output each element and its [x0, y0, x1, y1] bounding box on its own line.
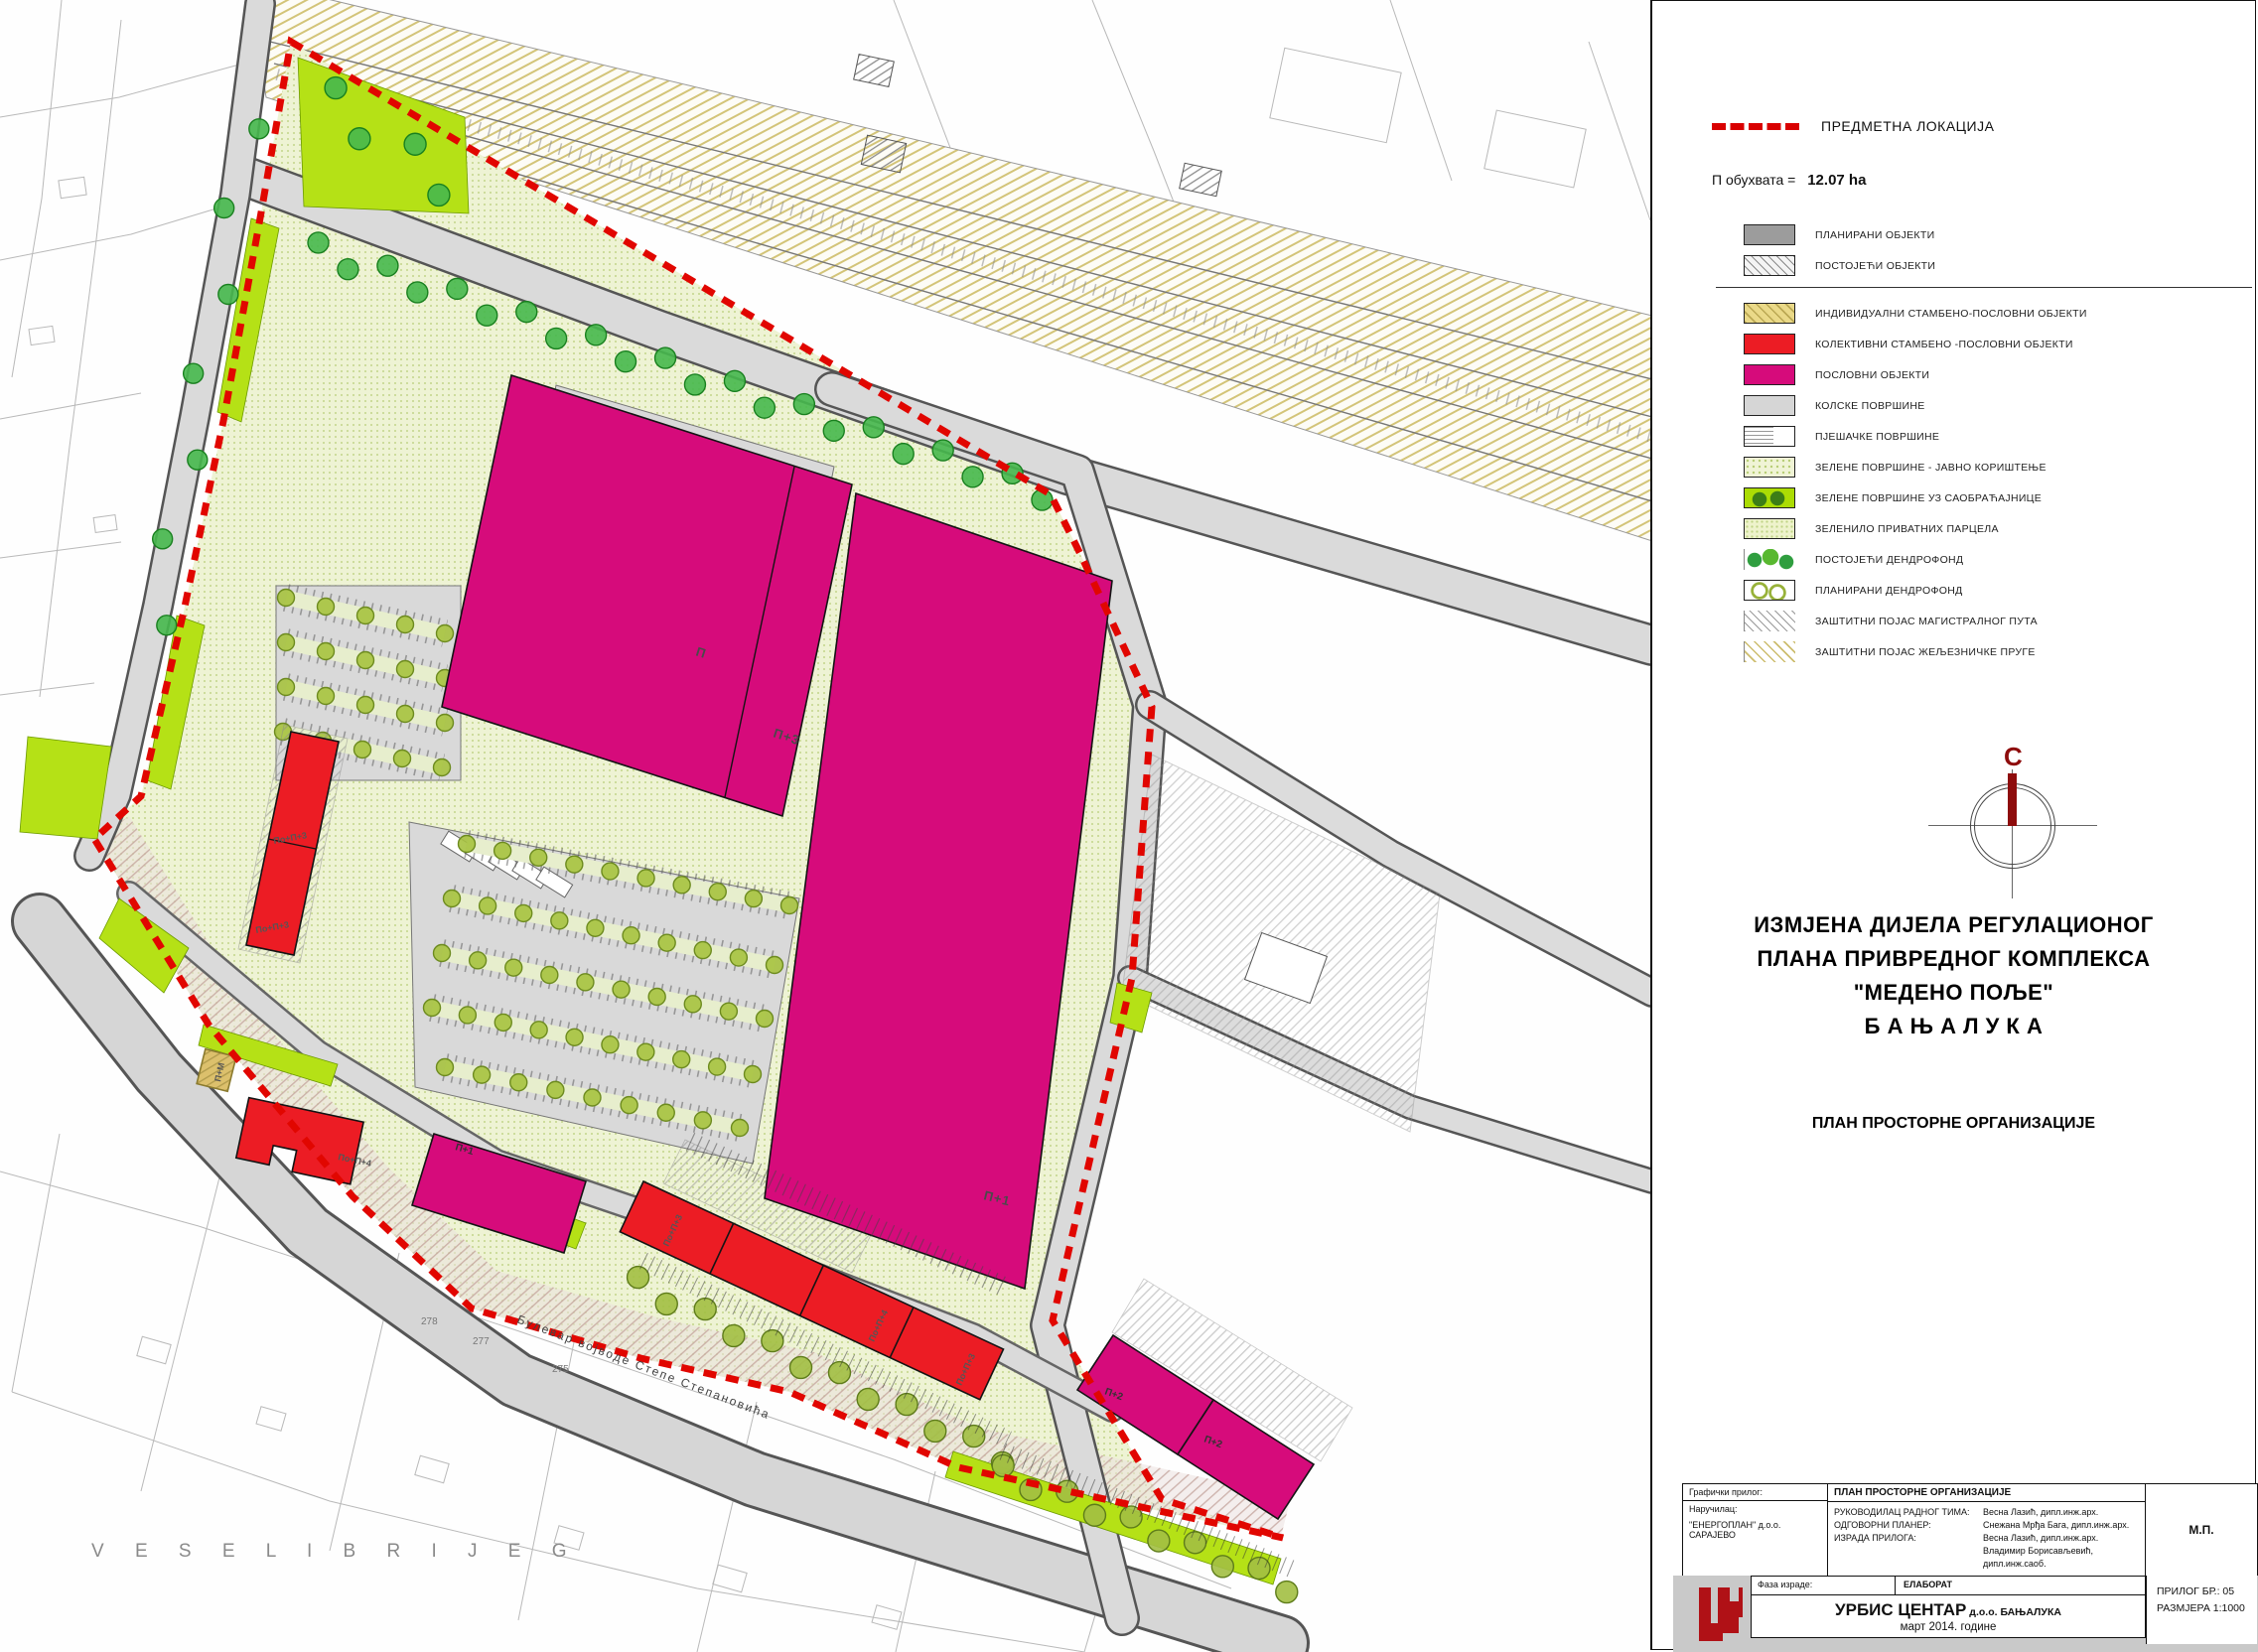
phase-label: Фаза израде:	[1752, 1577, 1896, 1594]
stamp-label: М.П.	[2146, 1484, 2257, 1576]
tree-icon	[1148, 1530, 1170, 1552]
tree-icon	[709, 1058, 726, 1075]
tree-icon	[566, 856, 583, 873]
tree-icon	[541, 967, 558, 984]
tree-icon	[377, 255, 398, 276]
tree-icon	[684, 374, 705, 395]
planned-dendrofund-swatch	[1744, 580, 1795, 601]
plan-name: ПЛАН ПРОСТОРНЕ ОРГАНИЗАЦИЈЕ	[1828, 1484, 2145, 1502]
tree-icon	[397, 661, 414, 678]
tree-icon	[694, 1112, 711, 1129]
subject-location-legend: ПРЕДМЕТНА ЛОКАЦИЈА	[1712, 118, 1994, 134]
tree-icon	[551, 912, 568, 929]
tree-icon	[648, 989, 665, 1006]
rail-belt-swatch	[1744, 641, 1795, 662]
tree-icon	[745, 1066, 762, 1083]
legend-item: ПОСЛОВНИ ОБЈЕКТИ	[1744, 359, 2245, 390]
legend-item: ЗЕЛЕНИЛО ПРИВАТНИХ ПАРЦЕЛА	[1744, 513, 2245, 544]
legend-item: ЗАШТИТНИ ПОЈАС ЖЕЉЕЗНИЧКЕ ПРУГЕ	[1744, 636, 2245, 667]
tree-icon	[623, 927, 639, 944]
tree-icon	[828, 1362, 850, 1384]
tree-icon	[566, 1029, 583, 1045]
tree-icon	[218, 284, 238, 304]
tree-icon	[724, 370, 745, 391]
tree-icon	[470, 952, 487, 969]
subject-location-label: ПРЕДМЕТНА ЛОКАЦИЈА	[1821, 118, 1994, 134]
tree-icon	[767, 957, 783, 974]
tree-icon	[434, 759, 451, 776]
tree-icon	[762, 1330, 783, 1352]
tree-icon	[530, 1022, 547, 1038]
tree-icon	[602, 863, 619, 880]
tree-icon	[621, 1097, 637, 1114]
legend-item: КОЛСКЕ ПОВРШИНЕ	[1744, 390, 2245, 421]
tree-icon	[407, 282, 428, 303]
legend-list: ПЛАНИРАНИ ОБЈЕКТИ ПОСТОЈЕЋИ ОБЈЕКТИ ИНДИ…	[1744, 219, 2245, 667]
compass-needle	[2008, 773, 2017, 826]
tree-icon	[325, 77, 347, 99]
phase-value: ЕЛАБОРАТ	[1896, 1577, 1960, 1594]
tree-icon	[745, 891, 762, 907]
legend-item: ПОСТОЈЕЋИ ОБЈЕКТИ	[1744, 250, 2245, 281]
tree-icon	[586, 325, 607, 345]
tree-icon	[480, 897, 496, 914]
company-suffix: д.о.о. БАЊАЛУКА	[1966, 1606, 2061, 1618]
tree-icon	[793, 394, 814, 415]
company-box: УРБИС ЦЕНТАР д.о.о. БАЊАЛУКА март 2014. …	[1751, 1594, 2146, 1638]
road-belt-swatch	[1744, 611, 1795, 631]
tree-icon	[318, 688, 335, 705]
tree-icon	[709, 884, 726, 900]
business-objects-swatch	[1744, 364, 1795, 385]
tree-icon	[505, 959, 522, 976]
svg-text:V E S E L I B R I J E G: V E S E L I B R I J E G	[91, 1541, 580, 1562]
title-block: Графички прилог: Наручилац: "ЕНЕРГОПЛАН"…	[1682, 1483, 2258, 1643]
tree-icon	[637, 1043, 654, 1060]
tree-icon	[781, 897, 798, 914]
tree-icon	[459, 1007, 476, 1024]
tree-icon	[444, 891, 461, 907]
scale-label: РАЗМЈЕРА 1:1000	[2157, 1600, 2257, 1617]
tree-icon	[655, 347, 676, 368]
tree-icon	[357, 608, 374, 624]
tree-icon	[318, 643, 335, 660]
tree-icon	[404, 133, 426, 155]
legend-item: КОЛЕКТИВНИ СТАМБЕНО -ПОСЛОВНИ ОБЈЕКТИ	[1744, 329, 2245, 359]
tree-icon	[757, 1011, 774, 1028]
client-label: Наручилац:	[1683, 1501, 1827, 1517]
tree-icon	[932, 440, 953, 461]
tree-icon	[397, 617, 414, 633]
plan-title: ИЗМЈЕНА ДИЈЕЛА РЕГУЛАЦИОНОГ ПЛАНА ПРИВРЕ…	[1652, 908, 2255, 1043]
tree-icon	[510, 1074, 527, 1091]
tree-icon	[616, 351, 636, 372]
legend-panel: ПРЕДМЕТНА ЛОКАЦИЈА П обухвата = 12.07 ha…	[1650, 0, 2256, 1650]
planned-objects-swatch	[1744, 224, 1795, 245]
tree-icon	[730, 949, 747, 966]
tree-icon	[394, 751, 411, 767]
company-date: март 2014. године	[1752, 1621, 2145, 1633]
tree-icon	[477, 305, 497, 326]
tree-icon	[437, 1059, 454, 1076]
tree-icon	[354, 742, 371, 758]
tree-icon	[694, 942, 711, 959]
svg-text:275: 275	[552, 1364, 569, 1375]
tree-icon	[428, 184, 450, 206]
site-map: П П+3 П+1 По+П+3 По+П+3 По+П+4 П+М П+1 П…	[0, 0, 1652, 1652]
tree-icon	[584, 1089, 601, 1106]
tree-icon	[723, 1324, 745, 1346]
red-dashed-line-icon	[1712, 123, 1799, 130]
tree-icon	[577, 974, 594, 991]
tree-icon	[673, 1051, 690, 1068]
collective-objects-swatch	[1744, 334, 1795, 354]
attachment-number: ПРИЛОГ БР.: 05	[2157, 1583, 2257, 1600]
coverage-area-value: 12.07 ha	[1807, 172, 1866, 189]
legend-item: ПЈЕШАЧКЕ ПОВРШИНЕ	[1744, 421, 2245, 452]
coverage-area-label: П обухвата =	[1712, 172, 1795, 188]
existing-dendrofund-swatch	[1744, 549, 1795, 570]
legend-item: ПЛАНИРАНИ ДЕНДРОФОНД	[1744, 575, 2245, 606]
tree-icon	[1185, 1532, 1206, 1554]
graphic-attachment-label: Графички прилог:	[1683, 1484, 1827, 1501]
tree-icon	[153, 529, 173, 549]
tree-icon	[587, 919, 604, 936]
tree-icon	[754, 397, 775, 418]
tree-icon	[447, 278, 468, 299]
tree-icon	[494, 1014, 511, 1031]
legend-item: ЗАШТИТНИ ПОЈАС МАГИСТРАЛНОГ ПУТА	[1744, 606, 2245, 636]
tree-icon	[184, 363, 204, 383]
legend-item: ЗЕЛЕНЕ ПОВРШИНЕ - ЈАВНО КОРИШТЕЊЕ	[1744, 452, 2245, 482]
tree-icon	[157, 616, 177, 635]
tree-icon	[790, 1356, 812, 1378]
tree-icon	[1276, 1582, 1298, 1603]
tree-icon	[658, 934, 675, 951]
north-compass-icon: С	[1928, 744, 2097, 912]
tree-icon	[732, 1120, 749, 1137]
tree-icon	[308, 232, 329, 253]
tree-icon	[516, 302, 537, 323]
tree-icon	[863, 417, 884, 438]
individual-objects-swatch	[1744, 303, 1795, 324]
tree-icon	[515, 904, 532, 921]
tree-icon	[357, 652, 374, 669]
tree-icon	[896, 1394, 917, 1416]
vehicular-surfaces-swatch	[1744, 395, 1795, 416]
tree-icon	[547, 1081, 564, 1098]
tree-icon	[857, 1388, 879, 1410]
tree-icon	[424, 1000, 441, 1017]
company-name: УРБИС ЦЕНТАР	[1835, 1600, 1966, 1619]
tree-icon	[349, 128, 370, 150]
tree-icon	[397, 706, 414, 723]
tree-icon	[1211, 1556, 1233, 1578]
tree-icon	[474, 1066, 491, 1083]
tree-icon	[530, 849, 547, 866]
tree-icon	[1083, 1504, 1105, 1526]
tree-icon	[992, 1454, 1014, 1476]
plan-sheet: П П+3 П+1 По+П+3 По+П+3 По+П+4 П+М П+1 П…	[0, 0, 2258, 1652]
tree-icon	[673, 877, 690, 894]
tree-icon	[278, 590, 295, 607]
green-private-swatch	[1744, 518, 1795, 539]
legend-item: ЗЕЛЕНЕ ПОВРШИНЕ УЗ САОБРАЋАЈНИЦЕ	[1744, 482, 2245, 513]
legend-item: ПОСТОЈЕЋИ ДЕНДРОФОНД	[1744, 544, 2245, 575]
tree-icon	[655, 1293, 677, 1314]
urbis-logo-icon	[1697, 1585, 1743, 1645]
tree-icon	[318, 599, 335, 616]
legend-item: ИНДИВИДУАЛНИ СТАМБЕНО-ПОСЛОВНИ ОБЈЕКТИ	[1744, 298, 2245, 329]
coverage-area: П обухвата = 12.07 ha	[1712, 172, 1866, 189]
north-letter: С	[2004, 742, 2023, 772]
tree-icon	[657, 1104, 674, 1121]
green-public-swatch	[1744, 457, 1795, 478]
green-road-swatch	[1744, 487, 1795, 508]
tree-icon	[188, 450, 208, 470]
tree-icon	[637, 870, 654, 887]
tree-icon	[494, 842, 511, 859]
tree-icon	[546, 328, 567, 348]
plan-subtitle: ПЛАН ПРОСТОРНЕ ОРГАНИЗАЦИЈЕ	[1652, 1115, 2255, 1133]
tree-icon	[278, 634, 295, 651]
existing-objects-swatch	[1744, 255, 1795, 276]
tree-icon	[459, 836, 476, 853]
tree-icon	[613, 981, 630, 998]
tree-icon	[962, 467, 983, 487]
tree-icon	[437, 715, 454, 732]
tree-icon	[214, 199, 234, 218]
tree-icon	[249, 119, 269, 139]
tree-icon	[720, 1003, 737, 1020]
tree-icon	[924, 1420, 946, 1442]
pedestrian-surfaces-swatch	[1744, 426, 1795, 447]
client-name: "ЕНЕРГОПЛАН" д.о.о. САРАЈЕВО	[1683, 1517, 1827, 1543]
tree-icon	[823, 420, 844, 441]
legend-divider	[1716, 287, 2252, 288]
tree-icon	[893, 444, 914, 465]
tree-icon	[628, 1267, 649, 1289]
tree-icon	[602, 1036, 619, 1053]
tree-icon	[684, 996, 701, 1013]
tree-icon	[357, 697, 374, 714]
tree-icon	[278, 679, 295, 696]
phase-row: Фаза израде: ЕЛАБОРАТ	[1751, 1576, 2146, 1595]
svg-text:278: 278	[421, 1316, 438, 1327]
tree-icon	[338, 259, 358, 280]
tree-icon	[437, 625, 454, 642]
tree-icon	[963, 1426, 985, 1447]
tree-icon	[434, 945, 451, 962]
legend-item: ПЛАНИРАНИ ОБЈЕКТИ	[1744, 219, 2245, 250]
svg-text:277: 277	[473, 1336, 490, 1347]
